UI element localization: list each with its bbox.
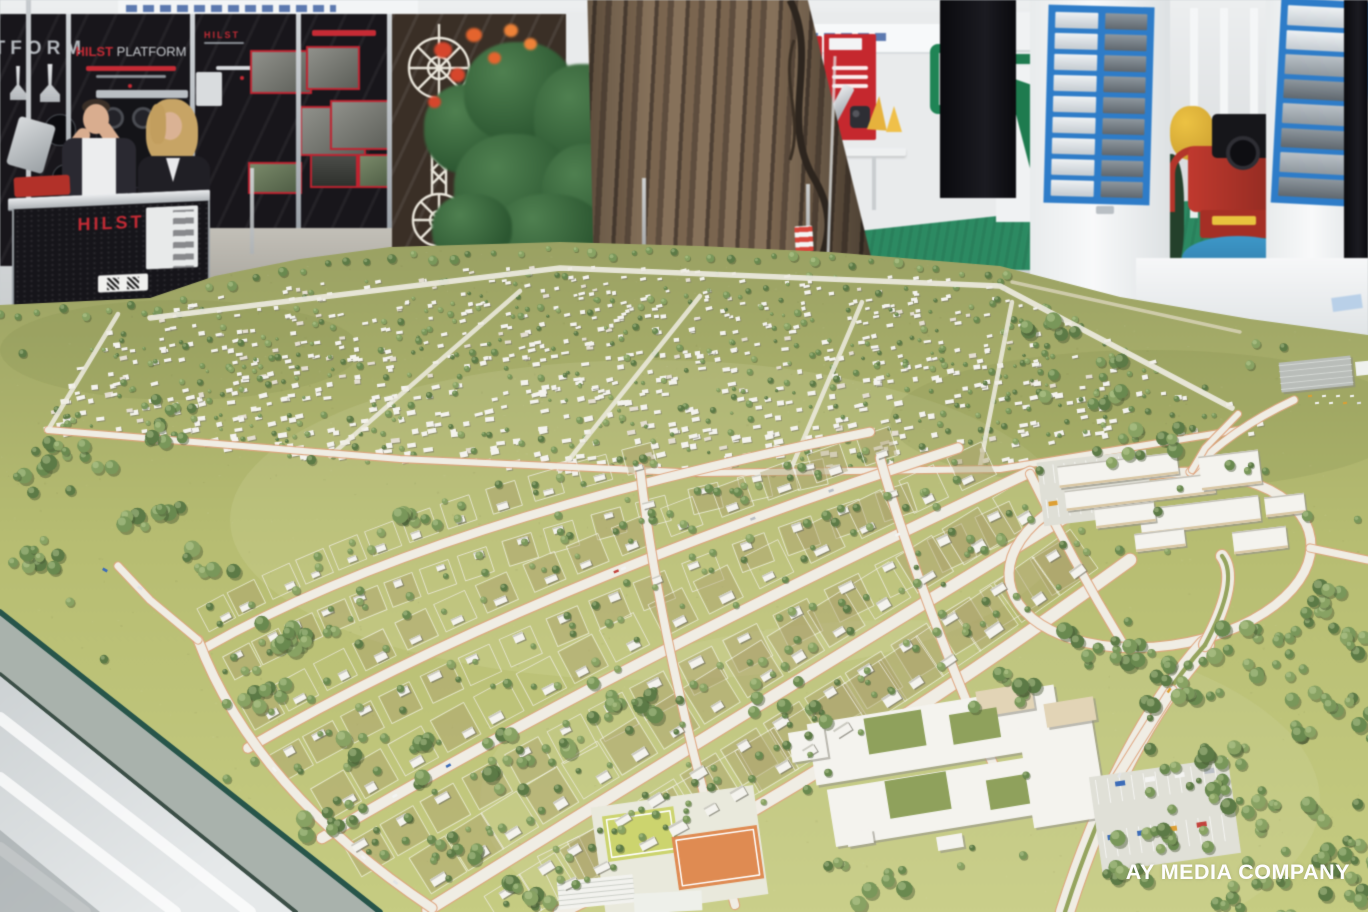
scale-model-canvas [0,0,1368,912]
watermark-text: AY MEDIA COMPANY [1126,860,1350,885]
exhibition-photo: PLATFORM HILST PLATFORM HILST [0,0,1368,912]
